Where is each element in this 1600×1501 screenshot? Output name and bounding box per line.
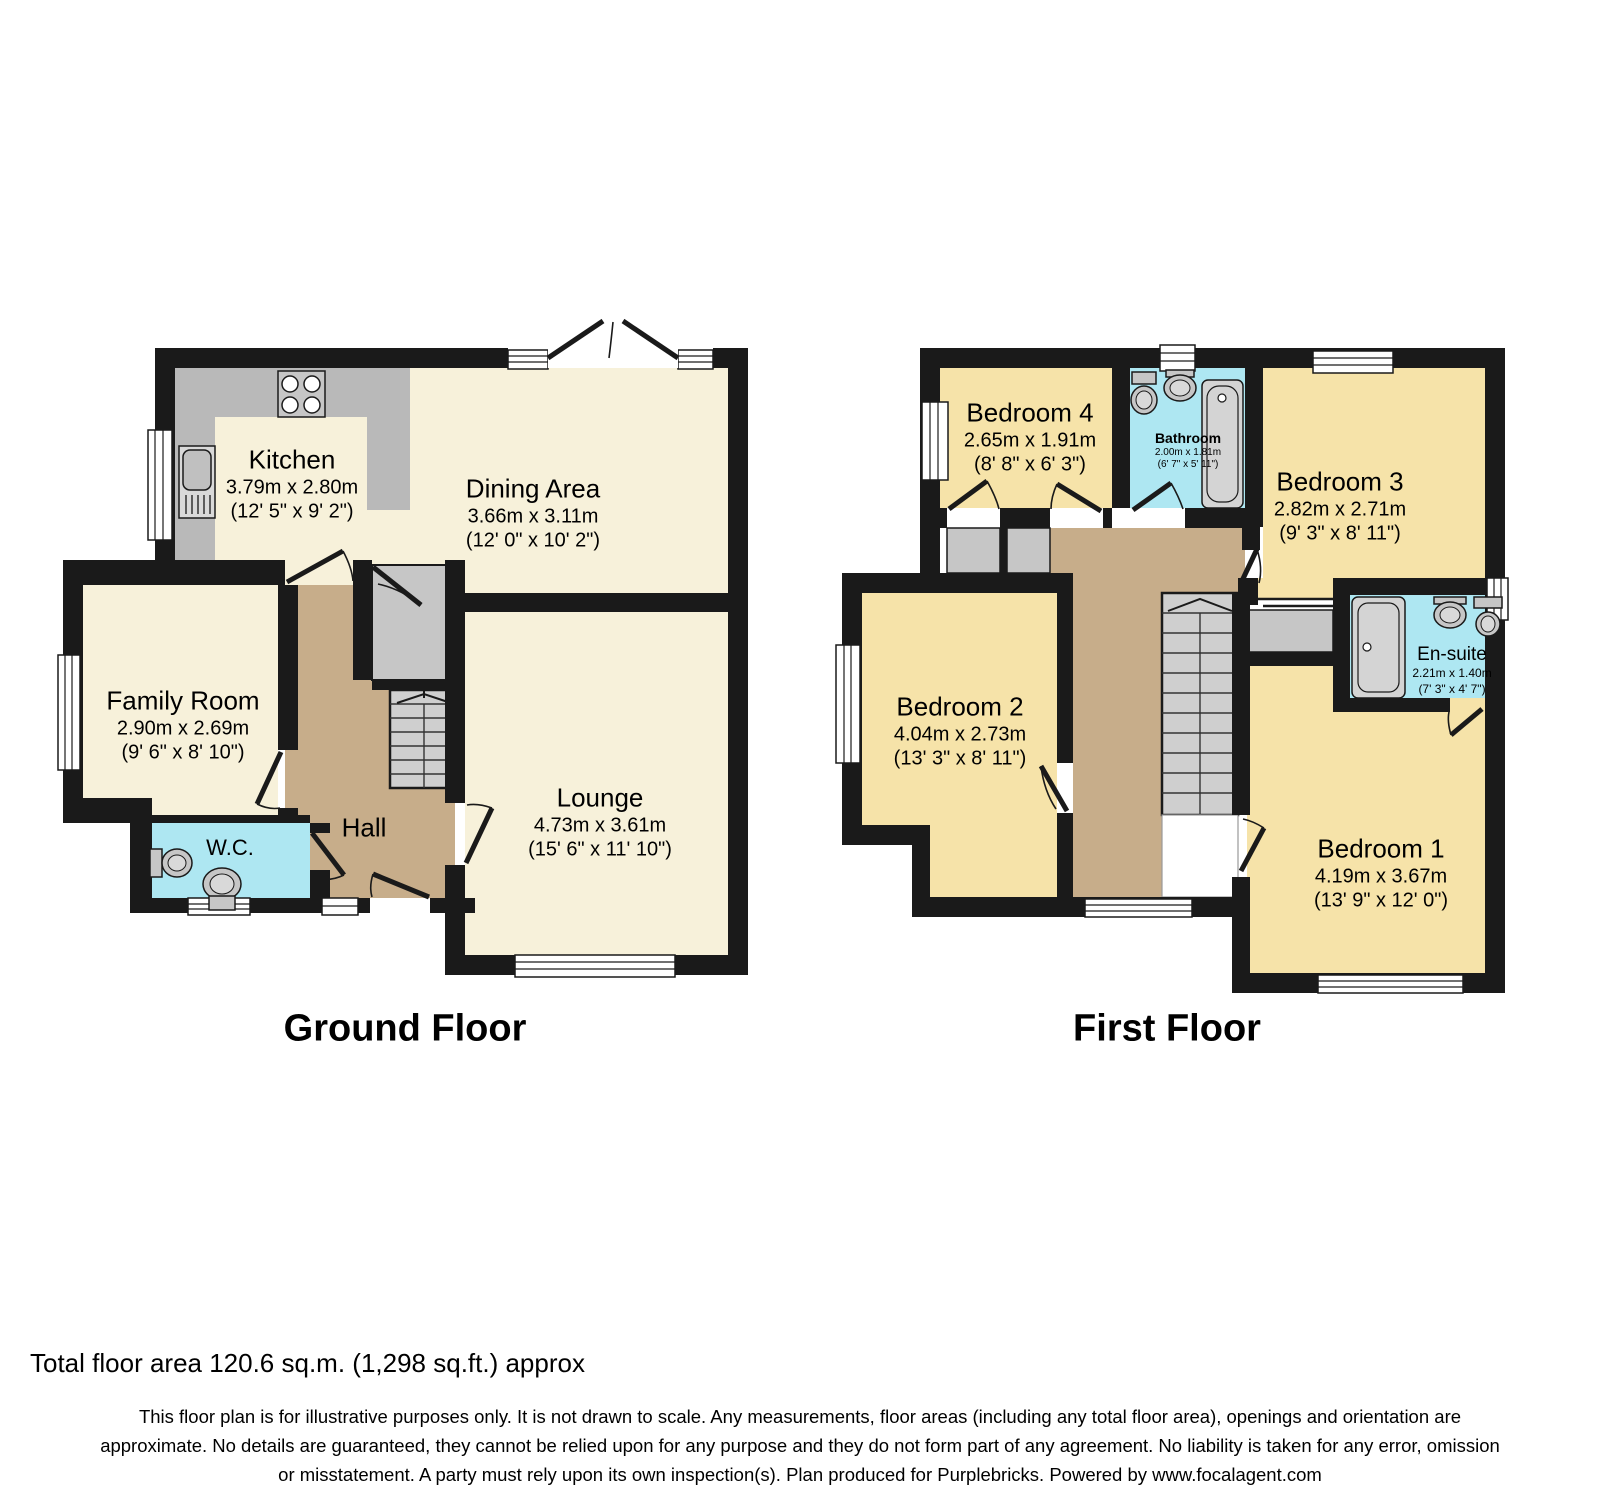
room-dim-metric: 4.73m x 3.61m [528,813,672,837]
window [58,655,80,770]
room-dim-metric: 2.90m x 2.69m [106,716,259,740]
room-dim-imperial: (12' 5" x 9' 2") [226,499,358,523]
window [836,645,860,763]
room-dim-metric: 3.66m x 3.11m [466,504,600,528]
room-name: W.C. [206,835,254,861]
window [922,402,948,480]
room-name: Lounge [528,782,672,813]
room-label-hall: Hall [342,813,387,844]
toilet-icon [150,849,192,877]
disclaimer-text: This floor plan is for illustrative purp… [0,1402,1600,1490]
room-dim-imperial: (15' 6" x 11' 10") [528,837,672,861]
cupboard [1247,610,1333,652]
room-label-kitchen: Kitchen 3.79m x 2.80m (12' 5" x 9' 2") [226,444,358,523]
window [678,350,713,369]
kitchen-sink-icon [179,446,215,518]
floorplan-page: Kitchen 3.79m x 2.80m (12' 5" x 9' 2") D… [0,0,1600,1501]
room-label-dining: Dining Area 3.66m x 3.11m (12' 0" x 10' … [466,473,600,552]
room-dim-metric: 3.79m x 2.80m [226,475,358,499]
room-name: Kitchen [226,444,358,475]
first-floor-title: First Floor [1073,1008,1261,1051]
window [322,898,358,915]
french-doors-icon [548,321,678,368]
room-label-bedroom2: Bedroom 2 4.04m x 2.73m (13' 3" x 8' 11"… [894,691,1027,770]
room-name: Bedroom 3 [1274,466,1406,497]
room-name: Bedroom 4 [964,397,1096,428]
room-label-bedroom3: Bedroom 3 2.82m x 2.71m (9' 3" x 8' 11") [1274,466,1406,545]
room-label-wc: W.C. [206,835,254,861]
room-dim-imperial: (7' 3" x 4' 7") [1412,682,1491,698]
toilet-icon [1131,372,1157,414]
disclaimer-line: This floor plan is for illustrative purp… [0,1402,1600,1431]
room-dim-imperial: (8' 8" x 6' 3") [964,452,1096,476]
basin-icon [1164,370,1196,401]
hall-closet [372,565,455,680]
room-name: Dining Area [466,473,600,504]
room-label-lounge: Lounge 4.73m x 3.61m (15' 6" x 11' 10") [528,782,672,861]
room-name: Hall [342,813,387,844]
closet [1007,528,1050,573]
room-name: Family Room [106,685,259,716]
ground-floor-plan [50,300,760,1000]
bathtub-icon [1352,597,1405,698]
window [515,955,675,977]
basin-icon [1434,597,1466,628]
window [1160,345,1195,371]
room-name: Bedroom 1 [1314,833,1448,864]
room-name: Bedroom 2 [894,691,1027,722]
basin-icon [203,868,241,910]
window [1318,975,1463,993]
hob-icon [278,371,325,417]
room-dim-imperial: (6' 7" x 5' 11") [1155,459,1221,472]
bedroom1-floor [1247,666,1485,973]
room-dim-imperial: (12' 0" x 10' 2") [466,528,600,552]
room-label-bathroom: Bathroom 2.00m x 1.81m (6' 7" x 5' 11") [1155,430,1221,472]
room-label-bedroom1: Bedroom 1 4.19m x 3.67m (13' 9" x 12' 0"… [1314,833,1448,912]
room-label-family: Family Room 2.90m x 2.69m (9' 6" x 8' 10… [106,685,259,764]
room-dim-imperial: (13' 9" x 12' 0") [1314,888,1448,912]
room-dim-imperial: (9' 6" x 8' 10") [106,740,259,764]
bedroom3-floor [1258,578,1333,600]
toilet-icon [1474,597,1502,636]
ground-floor-title: Ground Floor [284,1008,527,1051]
room-name: Bathroom [1155,430,1221,447]
room-label-bedroom4: Bedroom 4 2.65m x 1.91m (8' 8" x 6' 3") [964,397,1096,476]
room-name: En-suite [1412,644,1491,666]
room-dim-metric: 2.00m x 1.81m [1155,447,1221,460]
room-dim-metric: 2.82m x 2.71m [1274,497,1406,521]
room-label-ensuite: En-suite 2.21m x 1.40m (7' 3" x 4' 7") [1412,644,1491,698]
total-floor-area: Total floor area 120.6 sq.m. (1,298 sq.f… [30,1348,585,1379]
stairs-icon [1162,593,1238,897]
disclaimer-line: or misstatement. A party must rely upon … [0,1460,1600,1489]
sliding-door-icon [1258,599,1338,606]
room-dim-imperial: (9' 3" x 8' 11") [1274,521,1406,545]
window [1085,899,1192,917]
bedroom2-floor [930,825,1057,897]
room-dim-imperial: (13' 3" x 8' 11") [894,746,1027,770]
room-dim-metric: 4.04m x 2.73m [894,722,1027,746]
disclaimer-line: approximate. No details are guaranteed, … [0,1431,1600,1460]
window [508,350,548,369]
closet [947,528,1000,573]
room-dim-metric: 2.21m x 1.40m [1412,667,1491,683]
stair-void [1162,815,1238,897]
room-dim-metric: 4.19m x 3.67m [1314,864,1448,888]
window [1313,351,1393,373]
window [148,430,172,540]
room-dim-metric: 2.65m x 1.91m [964,428,1096,452]
